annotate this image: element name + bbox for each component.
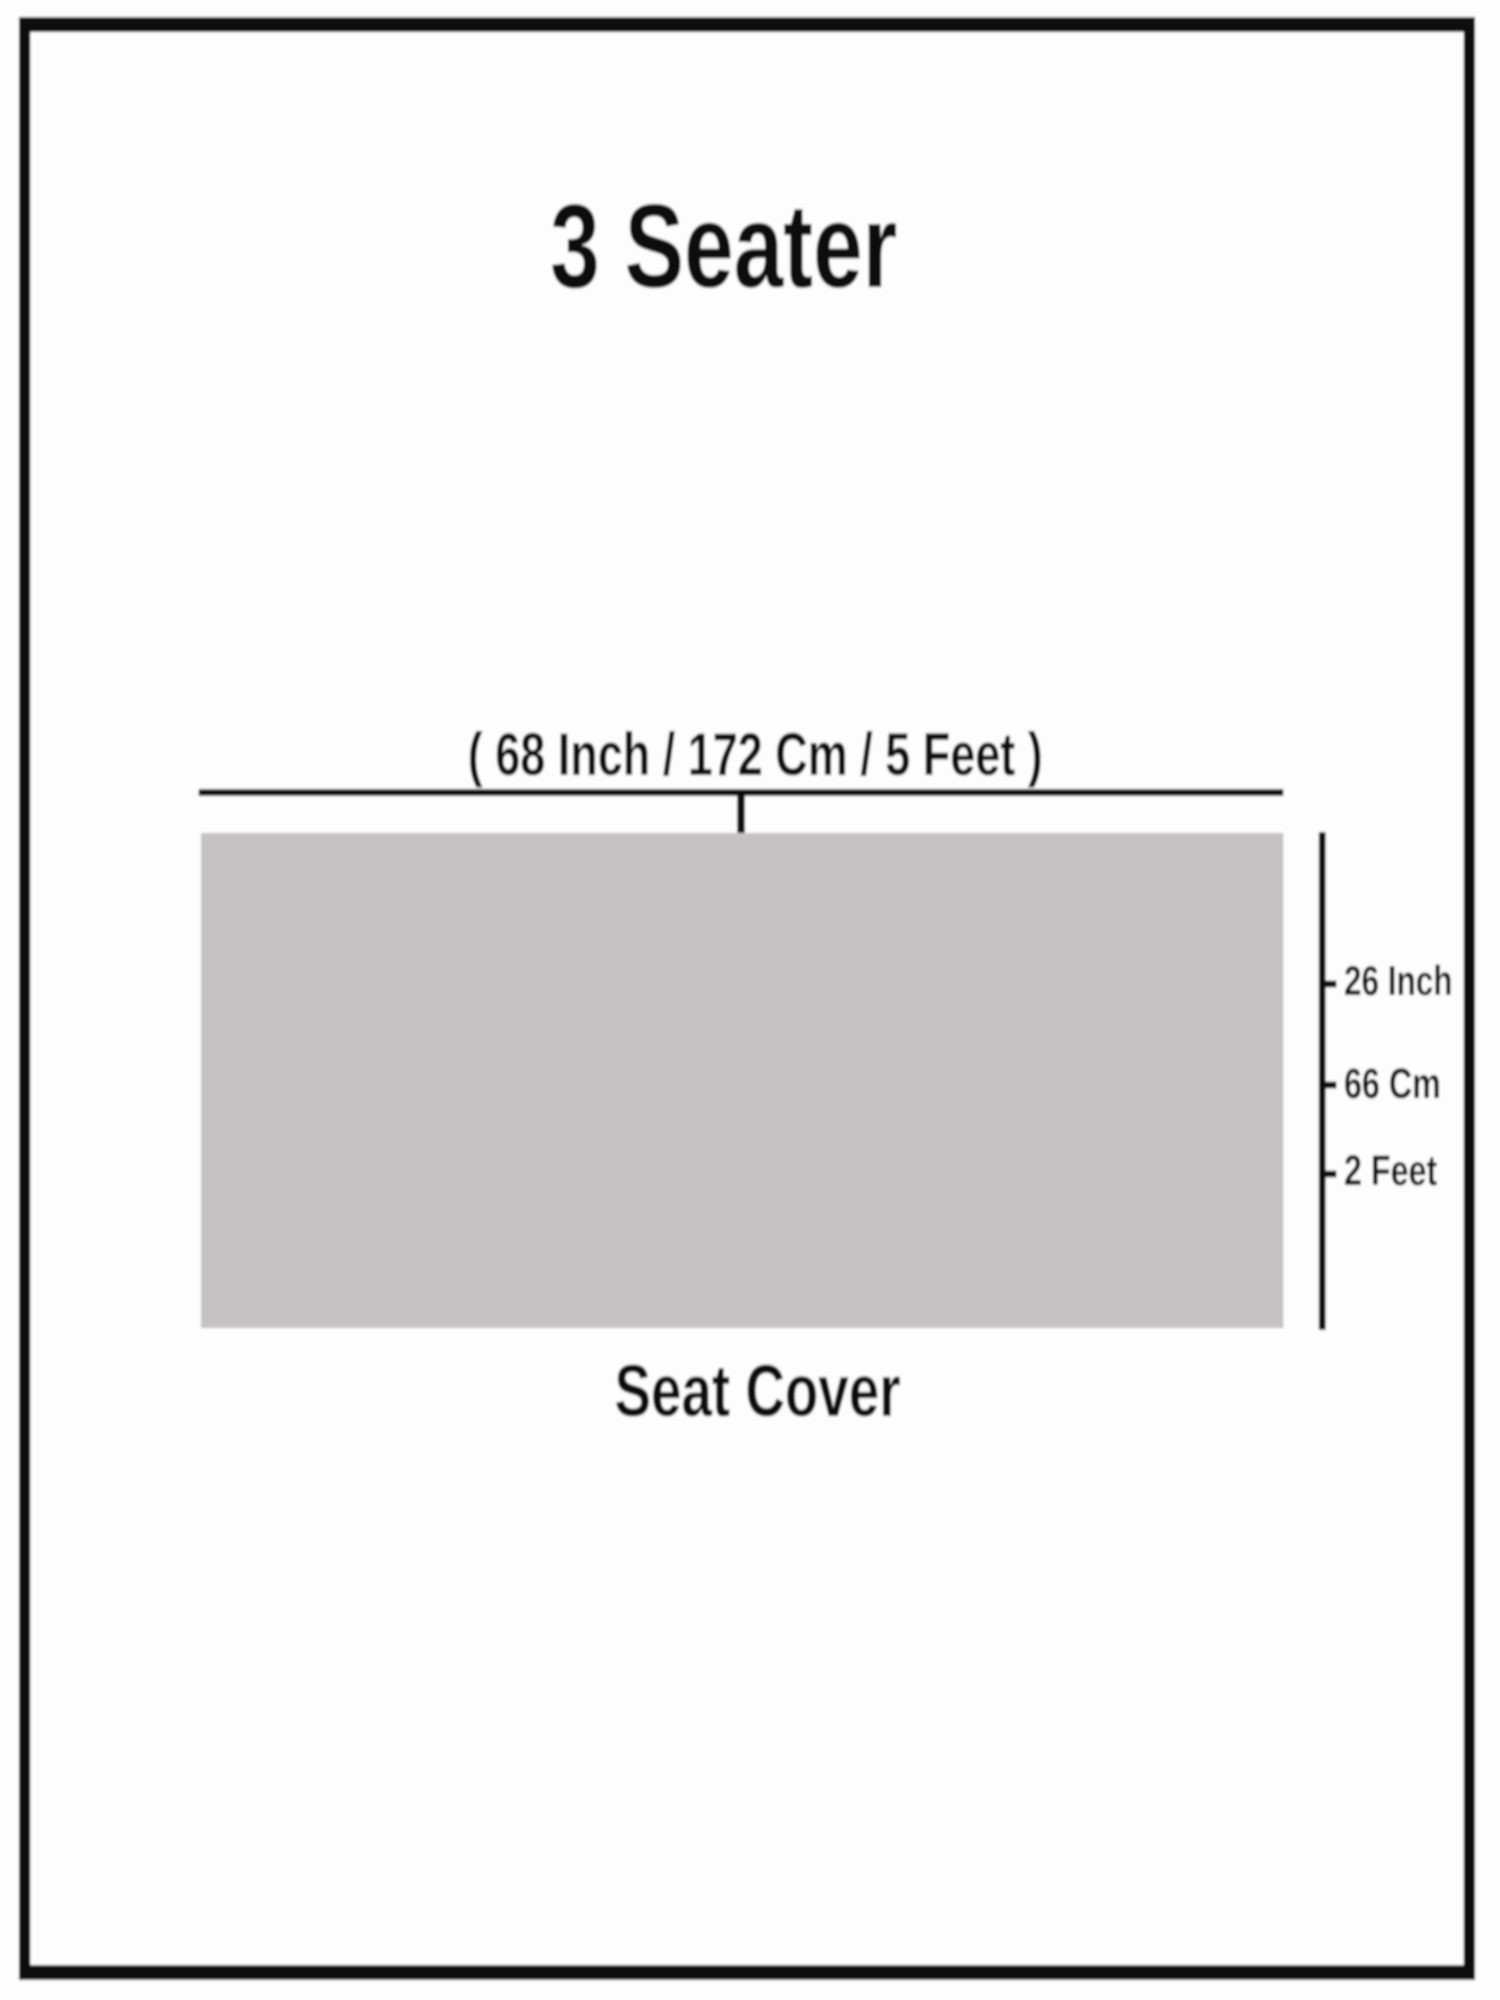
svg-text:66 Cm: 66 Cm <box>1344 1061 1441 1109</box>
svg-text:3 Seater: 3 Seater <box>550 181 897 313</box>
svg-text:26 Inch: 26 Inch <box>1344 957 1453 1005</box>
svg-text:2 Feet: 2 Feet <box>1344 1148 1437 1196</box>
svg-text:( 68 Inch / 172 Cm / 5 Feet ): ( 68 Inch / 172 Cm / 5 Feet ) <box>468 722 1043 789</box>
svg-text:Seat Cover: Seat Cover <box>614 1350 900 1431</box>
